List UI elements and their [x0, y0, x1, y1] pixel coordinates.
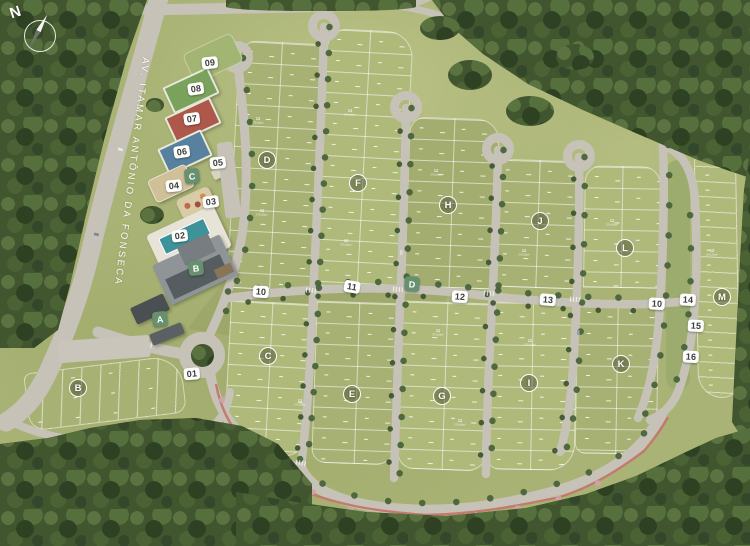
facility-badge-05[interactable]: 05	[209, 156, 227, 170]
block-badge-g[interactable]: G	[433, 387, 451, 405]
street-badge-14[interactable]: 14	[679, 293, 696, 306]
facility-badge-07[interactable]: 07	[183, 112, 201, 127]
street-badge-15[interactable]: 15	[687, 319, 704, 332]
block-badge-m[interactable]: M	[713, 288, 731, 306]
block-badge-j[interactable]: J	[531, 212, 549, 230]
facility-badge-03[interactable]: 03	[202, 195, 220, 209]
area-badge-c[interactable]: C	[184, 168, 200, 184]
masterplan-map: 12375,00m²12375,00m²12375,00m²12375,00m²…	[0, 0, 750, 546]
compass: N	[8, 4, 62, 62]
street-badge-13[interactable]: 13	[539, 293, 556, 307]
area-badge-a[interactable]: A	[152, 311, 168, 327]
block-badge-e[interactable]: E	[343, 385, 361, 403]
street-badge-11[interactable]: 11	[343, 279, 361, 294]
street-badge-10[interactable]: 10	[648, 297, 665, 310]
block-badge-k[interactable]: K	[612, 355, 630, 373]
block-badge-i[interactable]: I	[520, 374, 538, 392]
street-badge-12[interactable]: 12	[451, 290, 468, 304]
facility-badge-02[interactable]: 02	[171, 229, 189, 243]
compass-north-label: N	[8, 3, 24, 23]
street-badge-10[interactable]: 10	[252, 285, 269, 299]
area-badge-d[interactable]: D	[404, 276, 420, 292]
block-badge-h[interactable]: H	[439, 196, 457, 214]
block-badge-d[interactable]: D	[258, 151, 276, 169]
facility-badge-04[interactable]: 04	[165, 179, 183, 193]
block-badge-b[interactable]: B	[69, 379, 87, 397]
block-badge-f[interactable]: F	[349, 174, 367, 192]
area-badge-b[interactable]: B	[188, 260, 204, 276]
street-badge-16[interactable]: 16	[682, 350, 699, 363]
block-badge-l[interactable]: L	[616, 239, 634, 257]
facility-badge-01[interactable]: 01	[183, 367, 200, 381]
facility-badge-09[interactable]: 09	[201, 56, 219, 70]
facility-badge-06[interactable]: 06	[173, 145, 191, 160]
facility-badge-08[interactable]: 08	[187, 82, 205, 97]
block-badge-c[interactable]: C	[259, 347, 277, 365]
